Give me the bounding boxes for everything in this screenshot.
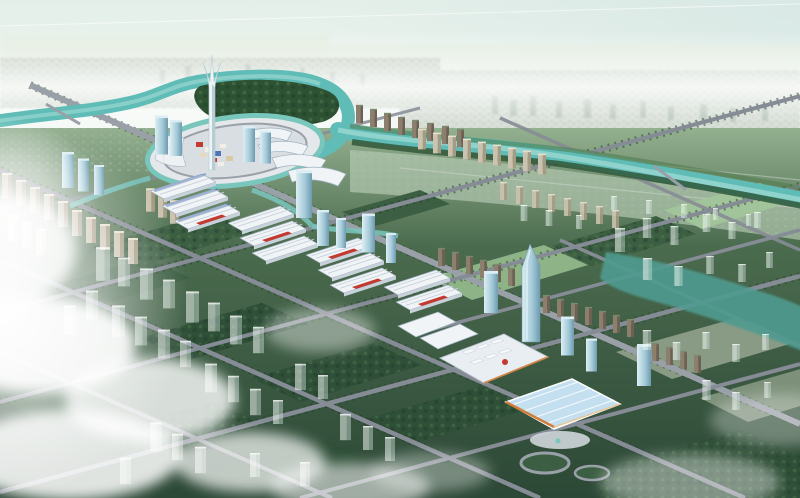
glass-tower: [170, 120, 182, 156]
glass-tower: [484, 271, 498, 313]
glass-tower: [561, 317, 574, 356]
roundabout: [521, 453, 569, 473]
glass-tower: [296, 170, 312, 218]
glass-tower: [586, 339, 597, 372]
glass-tower: [637, 344, 651, 386]
glass-tower: [386, 233, 396, 263]
glass-tower: [317, 210, 329, 246]
aerial-render: Aerial architectural rendering of a plan…: [0, 0, 800, 498]
glass-tower: [336, 218, 346, 248]
glass-tower: [260, 131, 271, 164]
glass-tower: [243, 126, 255, 162]
glass-tower: [155, 116, 168, 155]
fountain: [556, 439, 561, 444]
mall-sign: [502, 359, 508, 365]
glass-tower: [362, 214, 375, 253]
